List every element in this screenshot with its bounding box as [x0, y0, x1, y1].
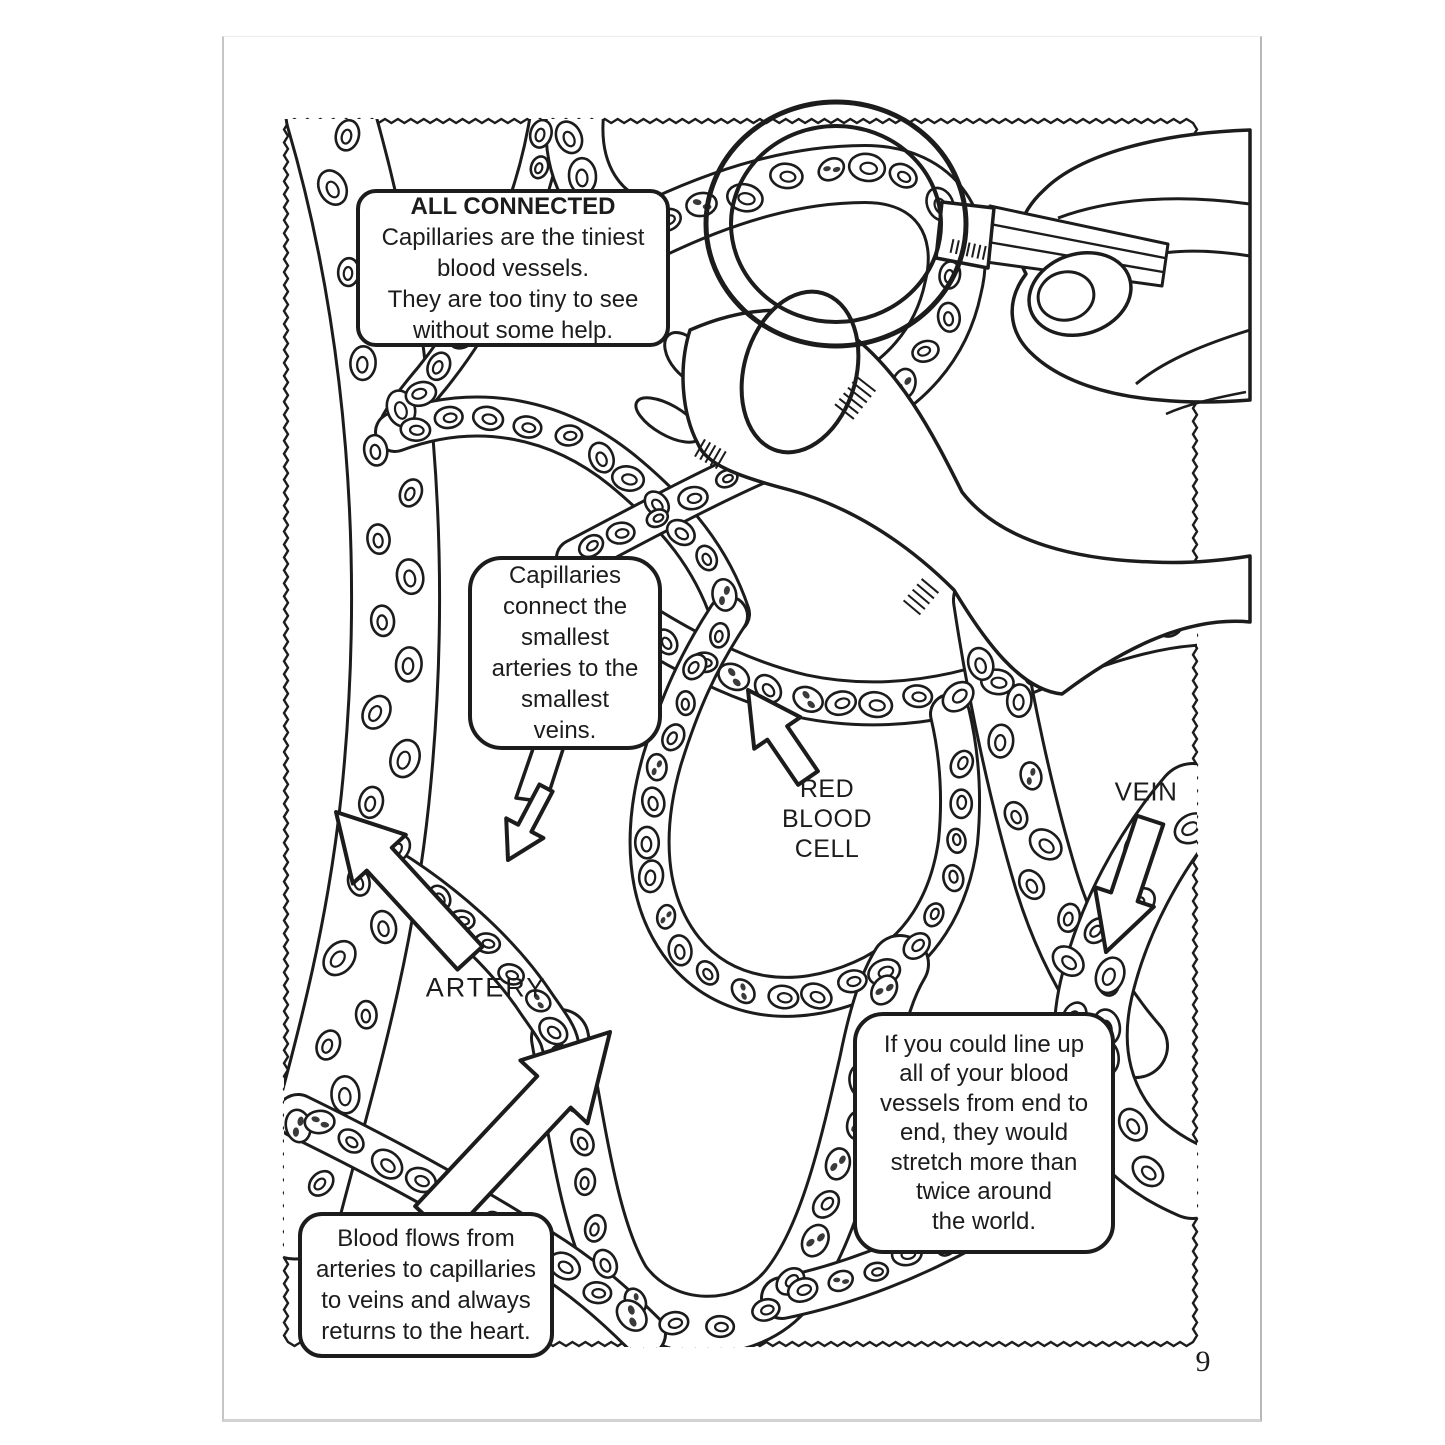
- label-red-blood-cell: RED BLOOD CELL: [782, 774, 872, 864]
- callout-body: Blood flows from arteries to capillaries…: [302, 1223, 550, 1347]
- speech-bubble-tail: [506, 740, 566, 860]
- callout-line-up-fact: If you could line up all of your blood v…: [853, 1012, 1115, 1254]
- page-number: 9: [1196, 1345, 1211, 1379]
- callout-title: ALL CONNECTED: [360, 191, 666, 222]
- callout-all-connected: ALL CONNECTED Capillaries are the tinies…: [356, 189, 670, 347]
- callout-blood-flows: Blood flows from arteries to capillaries…: [298, 1212, 554, 1358]
- callout-capillaries-connect: Capillaries connect the smallest arterie…: [468, 556, 662, 750]
- label-artery: ARTERY: [426, 973, 547, 1004]
- scanned-coloring-book-page: ALL CONNECTED Capillaries are the tinies…: [0, 0, 1445, 1445]
- label-vein: VEIN: [1115, 777, 1178, 808]
- callout-body: Capillaries connect the smallest arterie…: [472, 560, 658, 746]
- callout-body: Capillaries are the tiniest blood vessel…: [360, 222, 666, 346]
- coloring-illustration: [0, 0, 1445, 1445]
- callout-body: If you could line up all of your blood v…: [857, 1030, 1111, 1237]
